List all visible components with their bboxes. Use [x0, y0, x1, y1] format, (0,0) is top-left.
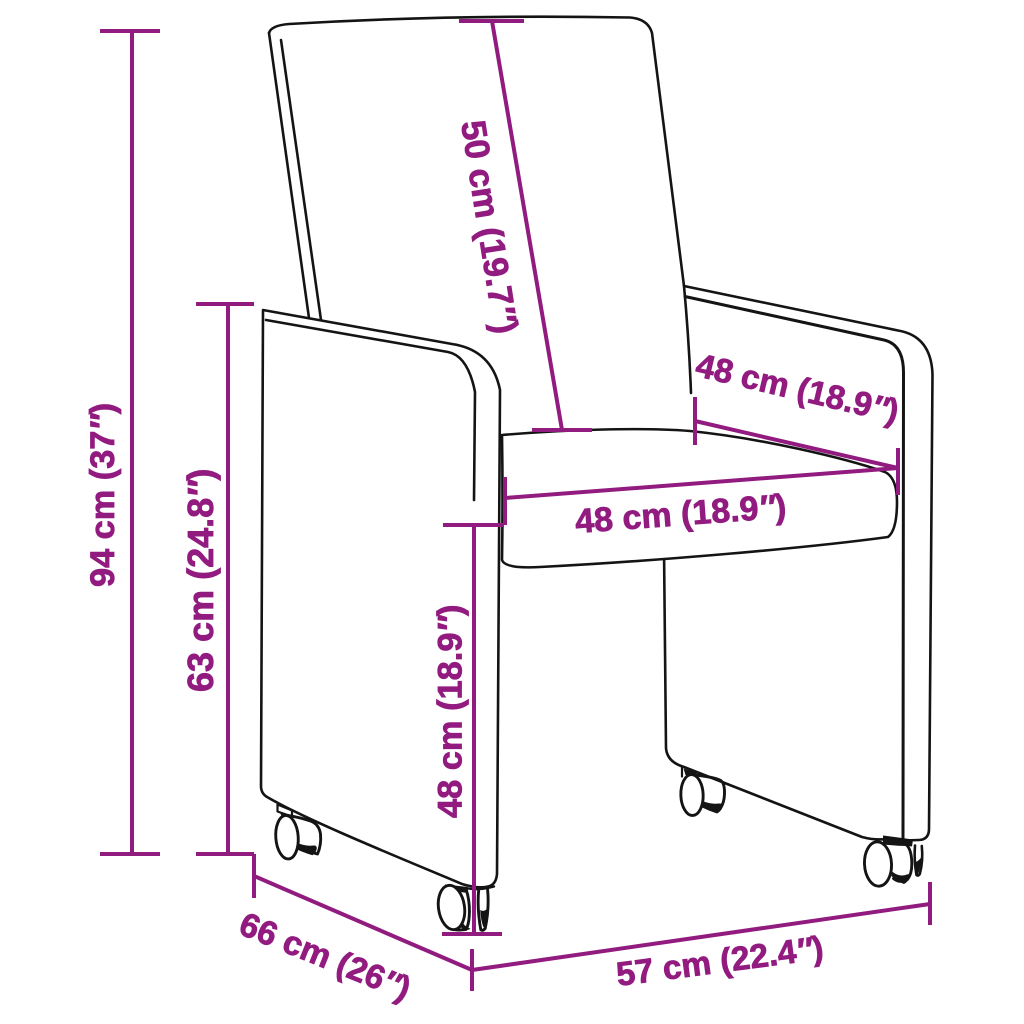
svg-text:48 cm (18.9″): 48 cm (18.9″) — [432, 605, 470, 818]
svg-text:94 cm (37″): 94 cm (37″) — [84, 403, 122, 587]
svg-text:63 cm (24.8″): 63 cm (24.8″) — [180, 469, 221, 692]
